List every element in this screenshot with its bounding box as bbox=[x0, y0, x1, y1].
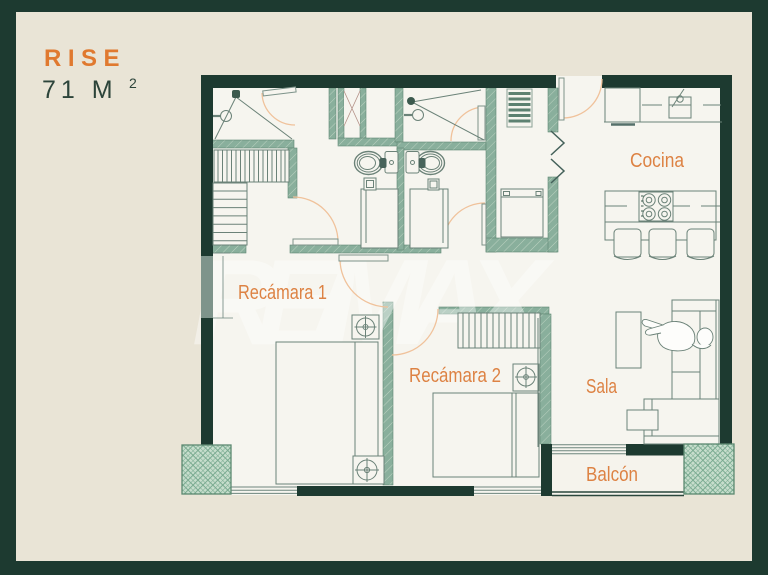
svg-text:Cocina: Cocina bbox=[630, 150, 685, 172]
svg-text:2: 2 bbox=[129, 75, 137, 91]
svg-text:Recámara 2: Recámara 2 bbox=[409, 365, 501, 387]
svg-text:71 M: 71 M bbox=[42, 76, 118, 104]
svg-text:Sala: Sala bbox=[586, 376, 618, 398]
svg-text:Balcón: Balcón bbox=[586, 464, 638, 486]
svg-text:Recámara 1: Recámara 1 bbox=[238, 282, 327, 304]
svg-text:RISE: RISE bbox=[44, 45, 126, 72]
